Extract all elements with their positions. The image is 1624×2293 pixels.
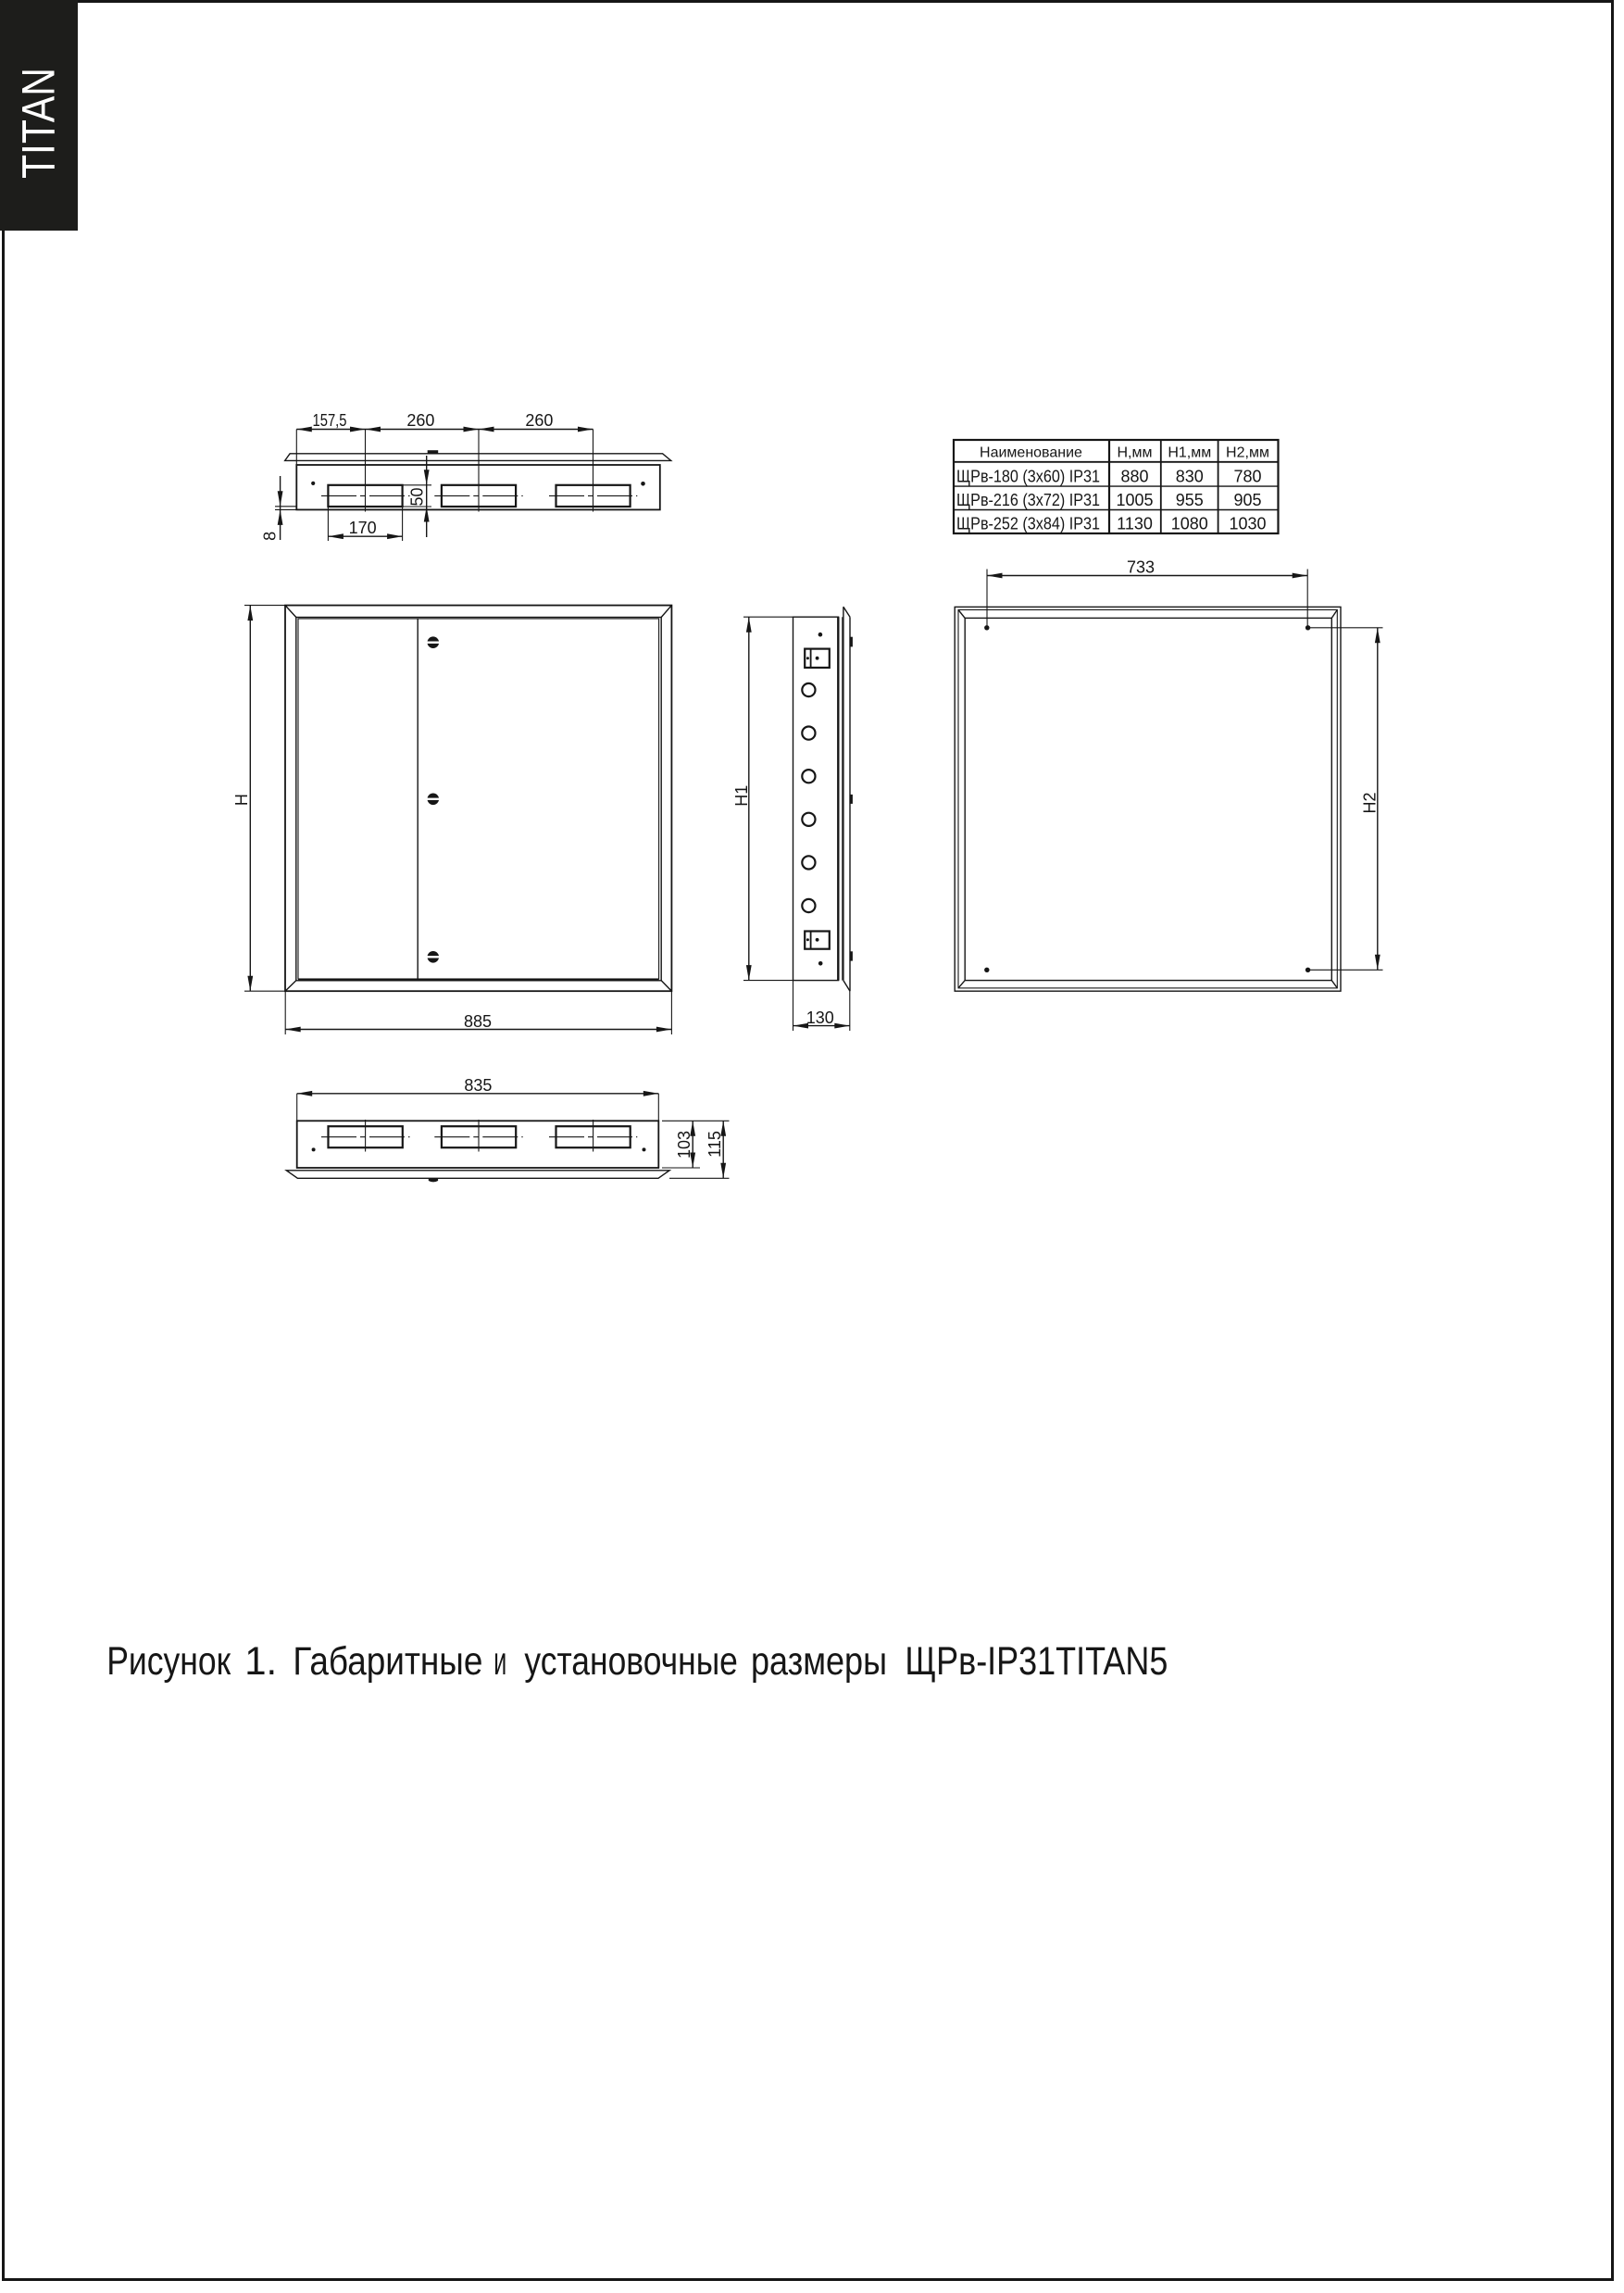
svg-text:установочные: установочные [524, 1639, 738, 1684]
svg-text:1080: 1080 [1171, 514, 1208, 533]
svg-text:TITAN: TITAN [13, 68, 65, 179]
svg-text:905: 905 [1233, 491, 1261, 509]
svg-text:835: 835 [464, 1076, 492, 1095]
svg-text:H1: H1 [732, 785, 751, 807]
svg-text:170: 170 [349, 519, 377, 537]
svg-text:Н1,мм: Н1,мм [1168, 445, 1211, 461]
svg-text:и: и [493, 1639, 506, 1684]
svg-text:8: 8 [260, 532, 279, 541]
svg-text:ЩРв-216 (3х72) IP31: ЩРв-216 (3х72) IP31 [956, 490, 1100, 509]
svg-text:H2: H2 [1360, 792, 1379, 813]
svg-text:885: 885 [464, 1012, 492, 1031]
svg-text:H: H [232, 794, 251, 806]
svg-text:размеры: размеры [751, 1639, 887, 1684]
svg-text:157,5: 157,5 [313, 411, 347, 430]
svg-text:1030: 1030 [1229, 514, 1266, 533]
svg-text:Габаритные: Габаритные [293, 1639, 482, 1684]
svg-text:260: 260 [406, 411, 434, 430]
svg-text:Н2,мм: Н2,мм [1226, 445, 1269, 461]
svg-text:ЩРв-252 (3х84) IP31: ЩРв-252 (3х84) IP31 [956, 513, 1100, 533]
svg-text:780: 780 [1233, 468, 1261, 486]
svg-text:830: 830 [1176, 468, 1204, 486]
svg-text:733: 733 [1127, 558, 1155, 577]
svg-text:955: 955 [1176, 491, 1204, 509]
svg-text:1005: 1005 [1116, 491, 1153, 509]
svg-text:880: 880 [1120, 468, 1148, 486]
svg-text:Н,мм: Н,мм [1118, 445, 1153, 461]
svg-text:50: 50 [408, 487, 427, 506]
svg-text:1.: 1. [244, 1639, 277, 1684]
svg-text:115: 115 [706, 1131, 724, 1158]
svg-text:ЩРв-180 (3х60) IP31: ЩРв-180 (3х60) IP31 [956, 467, 1100, 486]
svg-text:ЩРв-IP31TITAN5: ЩРв-IP31TITAN5 [905, 1639, 1168, 1684]
svg-text:260: 260 [525, 411, 553, 430]
svg-text:Рисунок: Рисунок [106, 1639, 231, 1684]
svg-text:103: 103 [675, 1131, 693, 1159]
svg-text:130: 130 [806, 1009, 834, 1027]
svg-text:Наименование: Наименование [980, 445, 1082, 461]
svg-text:1130: 1130 [1117, 514, 1153, 533]
